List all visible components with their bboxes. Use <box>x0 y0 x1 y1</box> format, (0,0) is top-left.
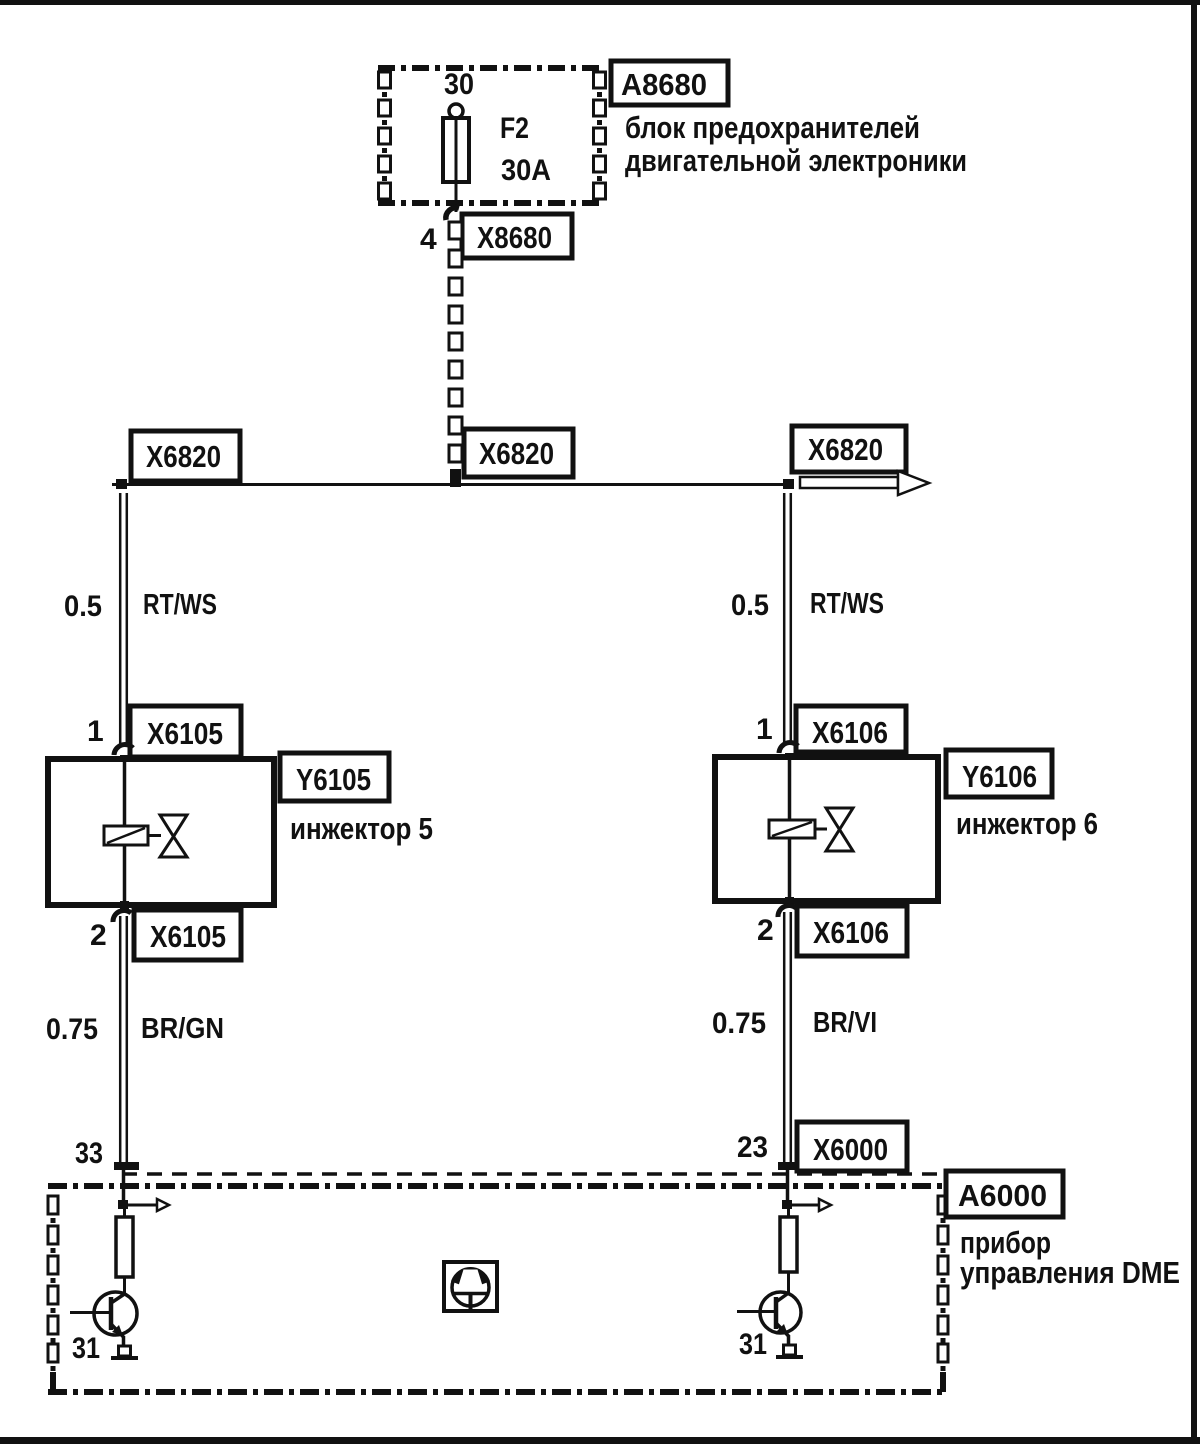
svg-text:RT/WS: RT/WS <box>810 588 884 620</box>
svg-text:2: 2 <box>90 919 107 952</box>
svg-text:33: 33 <box>75 1137 103 1170</box>
svg-text:X6105: X6105 <box>150 919 226 954</box>
svg-text:инжектор 6: инжектор 6 <box>956 806 1098 841</box>
svg-text:BR/GN: BR/GN <box>141 1013 224 1045</box>
svg-text:0.75: 0.75 <box>46 1013 98 1046</box>
svg-text:2: 2 <box>757 914 774 947</box>
svg-text:X6820: X6820 <box>146 439 221 474</box>
svg-text:Y6105: Y6105 <box>296 762 371 797</box>
svg-text:инжектор 5: инжектор 5 <box>290 811 433 846</box>
svg-text:X6105: X6105 <box>147 716 223 751</box>
svg-text:1: 1 <box>87 715 104 748</box>
svg-text:BR/VI: BR/VI <box>813 1007 877 1039</box>
svg-text:30A: 30A <box>501 154 551 187</box>
svg-text:управления DME: управления DME <box>960 1255 1180 1290</box>
svg-text:0.5: 0.5 <box>731 589 769 622</box>
svg-text:X6820: X6820 <box>479 436 554 471</box>
svg-text:RT/WS: RT/WS <box>143 589 217 621</box>
svg-text:X6820: X6820 <box>808 432 883 467</box>
svg-text:X6106: X6106 <box>812 715 888 750</box>
svg-text:1: 1 <box>756 713 773 746</box>
svg-text:0.75: 0.75 <box>712 1007 766 1040</box>
svg-text:0.5: 0.5 <box>64 590 102 623</box>
svg-text:X8680: X8680 <box>477 220 552 255</box>
svg-text:A6000: A6000 <box>958 1178 1047 1213</box>
svg-text:двигательной электроники: двигательной электроники <box>625 143 967 178</box>
svg-text:блок предохранителей: блок предохранителей <box>625 110 920 145</box>
svg-text:23: 23 <box>737 1131 768 1164</box>
svg-text:X6000: X6000 <box>813 1132 888 1167</box>
svg-text:Y6106: Y6106 <box>962 759 1037 794</box>
svg-text:X6106: X6106 <box>813 915 889 950</box>
svg-text:A8680: A8680 <box>621 67 707 102</box>
svg-text:30: 30 <box>444 68 474 101</box>
svg-text:4: 4 <box>420 223 437 256</box>
svg-text:F2: F2 <box>500 112 529 145</box>
svg-text:31: 31 <box>739 1328 767 1361</box>
svg-text:31: 31 <box>72 1332 100 1365</box>
